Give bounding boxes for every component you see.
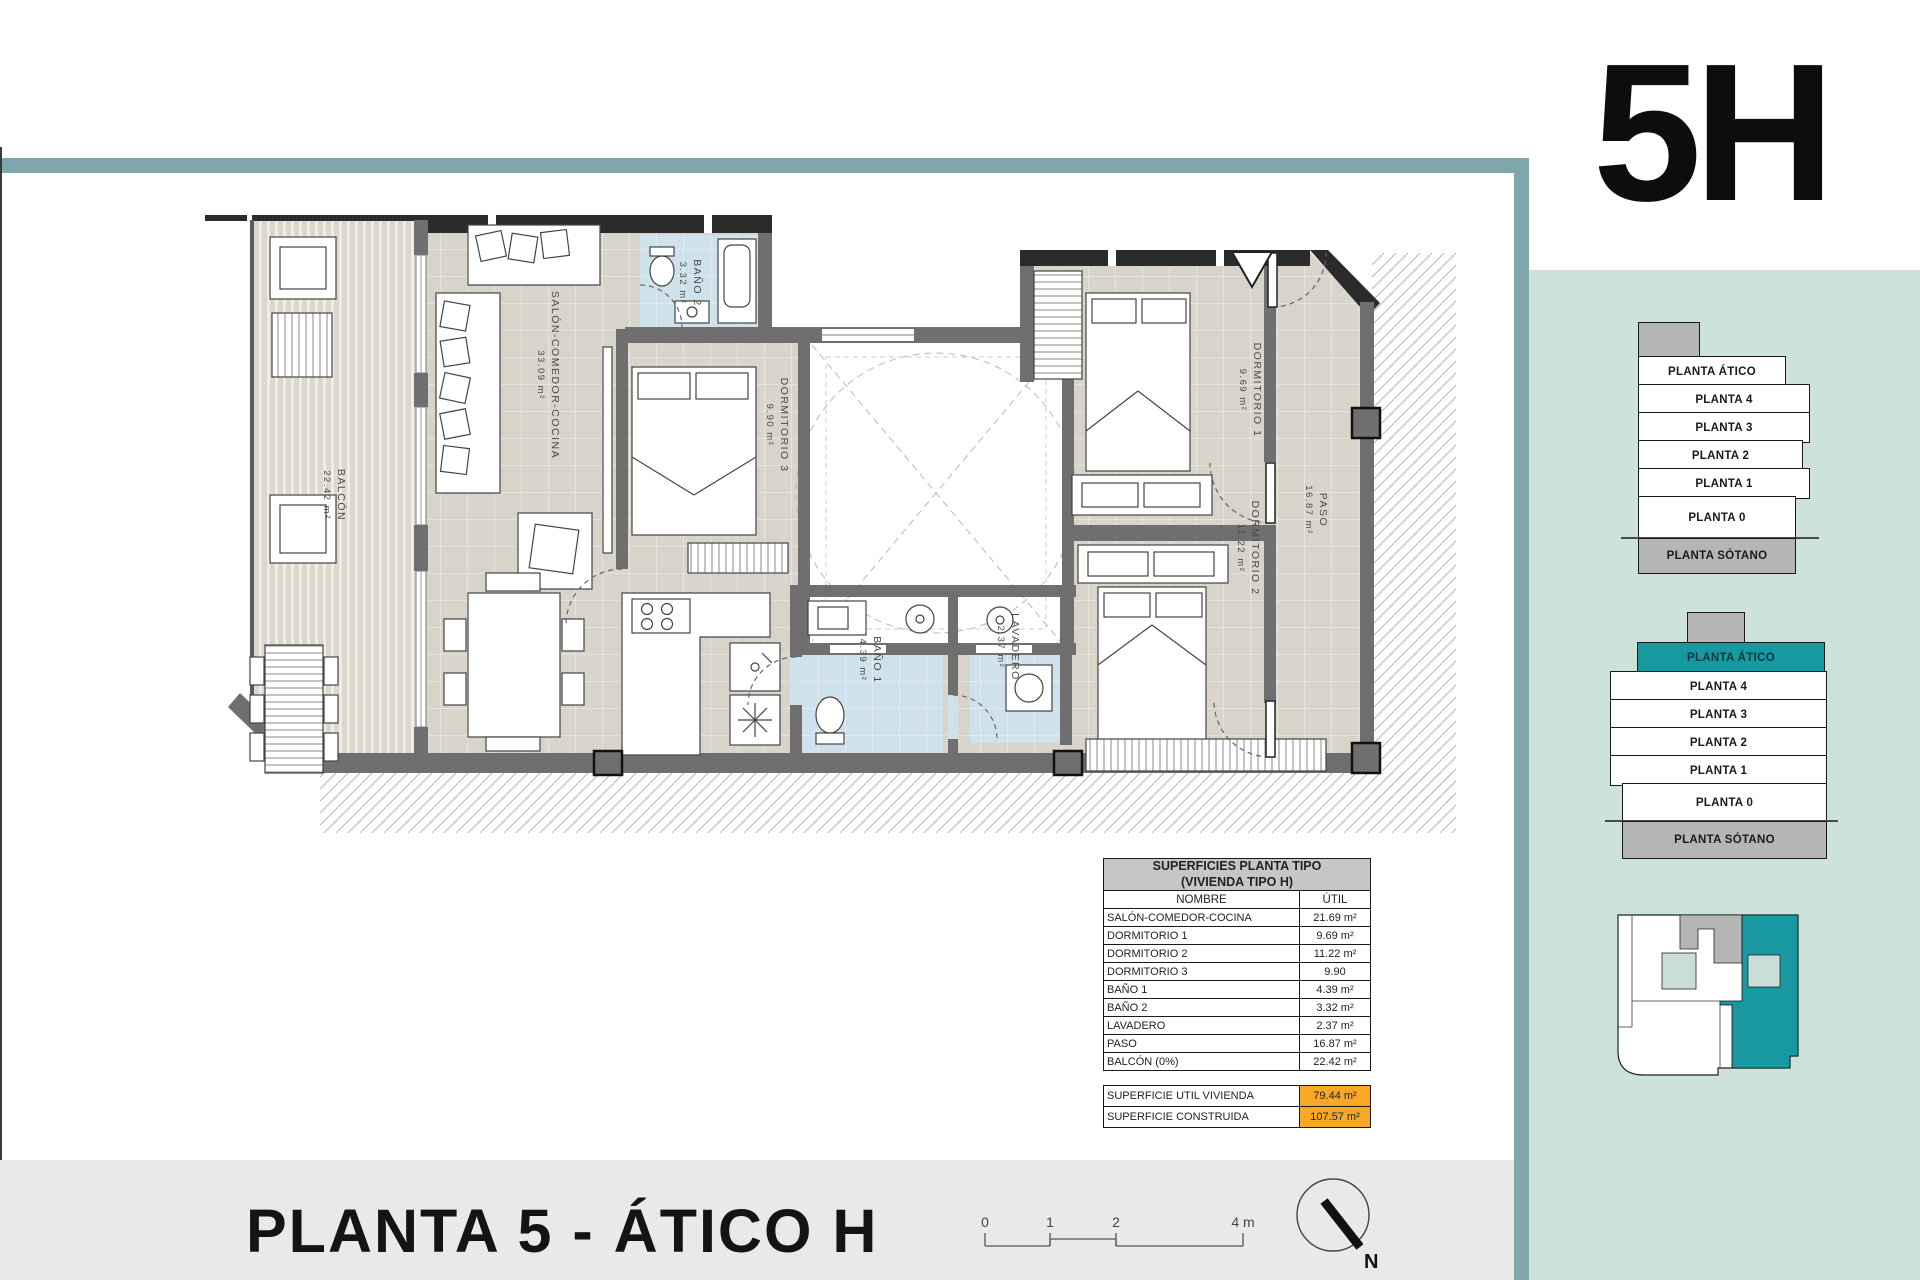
floor-row-sotano[interactable]: PLANTA SÓTANO [1638, 538, 1796, 574]
room-area: 22.42 m² [321, 470, 332, 520]
col-header-nombre: NOMBRE [1104, 891, 1300, 909]
table-row: BAÑO 23.32 m² [1104, 999, 1371, 1017]
room-label: DORMITORIO 2 [1249, 501, 1261, 596]
north-label: N [1364, 1251, 1378, 1273]
balcony-windows [414, 220, 428, 753]
floor-row-planta-1[interactable]: PLANTA 1 [1610, 755, 1827, 786]
total-util-value: 79.44 m² [1300, 1086, 1371, 1107]
north-arrow: N [1292, 1168, 1396, 1280]
floor-row-planta-2[interactable]: PLANTA 2 [1638, 440, 1803, 471]
room-label: DORMITORIO 1 [1251, 343, 1263, 438]
room-label: BAÑO 2 [691, 259, 704, 307]
top-accent-band [0, 158, 1529, 173]
stack-chimney [1638, 322, 1700, 359]
room-area: 33.09 m² [535, 350, 546, 400]
stack-chimney [1687, 612, 1745, 645]
table-row: DORMITORIO 39.90 [1104, 963, 1371, 981]
room-area: 16.87 m² [1303, 485, 1314, 535]
totals-table: SUPERFICIE UTIL VIVIENDA79.44 m² SUPERFI… [1103, 1085, 1371, 1128]
table-row: LAVADERO2.37 m² [1104, 1017, 1371, 1035]
scale-tick-1: 1 [1046, 1214, 1054, 1230]
table-row: BALCÓN (0%)22.42 m² [1104, 1053, 1371, 1071]
floor-row-planta-3[interactable]: PLANTA 3 [1610, 699, 1827, 730]
floor-row-planta-0[interactable]: PLANTA 0 [1622, 783, 1827, 823]
floor-plan: BALCÓN 22.42 m² SALÓN-COMEDOR-COCINA 33.… [170, 195, 1460, 860]
sheet-border-line [0, 147, 2, 1160]
table-row: SUPERFICIE CONSTRUIDA107.57 m² [1104, 1107, 1371, 1128]
room-label: PASO [1317, 493, 1329, 527]
page-title: PLANTA 5 - ÁTICO H [246, 1196, 878, 1266]
key-plan-patio-left [1662, 953, 1696, 989]
floor-row-planta-1[interactable]: PLANTA 1 [1638, 468, 1810, 499]
floor-row-sotano[interactable]: PLANTA SÓTANO [1622, 821, 1827, 859]
key-plan-patio-right [1748, 955, 1780, 987]
surfaces-table-title: SUPERFICIES PLANTA TIPO(VIVIENDA TIPO H) [1104, 859, 1371, 891]
scale-bar: 0 1 2 4 m [970, 1200, 1260, 1260]
room-area: 9.69 m² [1237, 369, 1248, 412]
room-label: DORMITORIO 3 [778, 378, 790, 473]
scale-tick-4m: 4 m [1231, 1214, 1254, 1230]
room-area: 2.37 m² [995, 626, 1006, 669]
north-needle [1324, 1201, 1360, 1247]
table-row: PASO16.87 m² [1104, 1035, 1371, 1053]
surfaces-table: SUPERFICIES PLANTA TIPO(VIVIENDA TIPO H)… [1103, 858, 1371, 1128]
room-label: SALÓN-COMEDOR-COCINA [549, 291, 562, 459]
floor-row-planta-0[interactable]: PLANTA 0 [1638, 496, 1796, 540]
unit-code: 5H [1520, 28, 1900, 248]
room-area: 4.39 m² [857, 639, 868, 682]
floor-row-atico-selected[interactable]: PLANTA ÁTICO [1637, 642, 1825, 674]
key-plan [1602, 905, 1826, 1089]
floor-stack-plain: PLANTA ÁTICO PLANTA 4 PLANTA 3 PLANTA 2 … [1621, 322, 1841, 577]
total-built-value: 107.57 m² [1300, 1107, 1371, 1128]
floor-row-planta-4[interactable]: PLANTA 4 [1610, 671, 1827, 702]
page: 5H [0, 0, 1920, 1280]
room-area: 9.90 m² [764, 404, 775, 447]
right-accent-band [1514, 158, 1529, 1280]
table-row: SUPERFICIE UTIL VIVIENDA79.44 m² [1104, 1086, 1371, 1107]
room-label: LAVADERO [1009, 613, 1021, 681]
table-row: BAÑO 14.39 m² [1104, 981, 1371, 999]
room-label: BAÑO 1 [871, 636, 884, 684]
room-label: BALCÓN [335, 469, 348, 521]
scale-tick-0: 0 [981, 1214, 989, 1230]
floor-stack-highlighted: PLANTA ÁTICO PLANTA 4 PLANTA 3 PLANTA 2 … [1605, 612, 1845, 862]
table-row: DORMITORIO 211.22 m² [1104, 945, 1371, 963]
floor-row-planta-3[interactable]: PLANTA 3 [1638, 412, 1810, 443]
floor-row-atico[interactable]: PLANTA ÁTICO [1638, 356, 1786, 387]
floor-row-planta-2[interactable]: PLANTA 2 [1610, 727, 1827, 758]
table-row: SALÓN-COMEDOR-COCINA21.69 m² [1104, 909, 1371, 927]
floor-row-planta-4[interactable]: PLANTA 4 [1638, 384, 1810, 415]
scale-tick-2: 2 [1112, 1214, 1120, 1230]
col-header-util: ÚTIL [1300, 891, 1371, 909]
table-row: DORMITORIO 19.69 m² [1104, 927, 1371, 945]
room-area: 3.32 m² [677, 262, 688, 305]
room-area: 11.22 m² [1235, 524, 1246, 573]
